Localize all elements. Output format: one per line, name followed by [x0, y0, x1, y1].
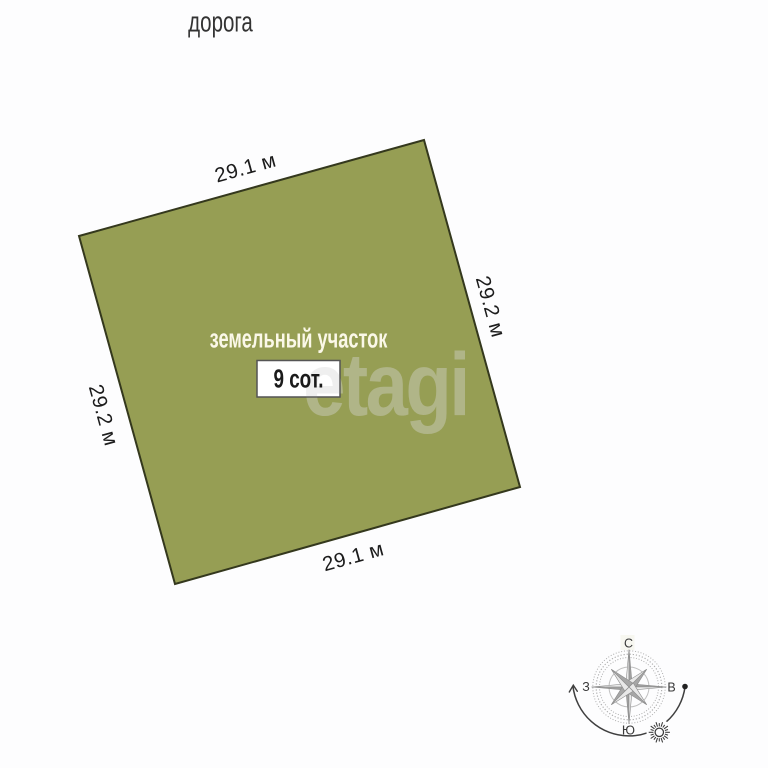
svg-text:В: В — [667, 681, 675, 695]
svg-text:9 сот.: 9 сот. — [273, 365, 323, 393]
svg-text:дорога: дорога — [188, 7, 253, 38]
svg-text:etagi: etagi — [303, 334, 468, 434]
svg-text:С: С — [624, 637, 633, 651]
svg-text:З: З — [582, 680, 590, 694]
